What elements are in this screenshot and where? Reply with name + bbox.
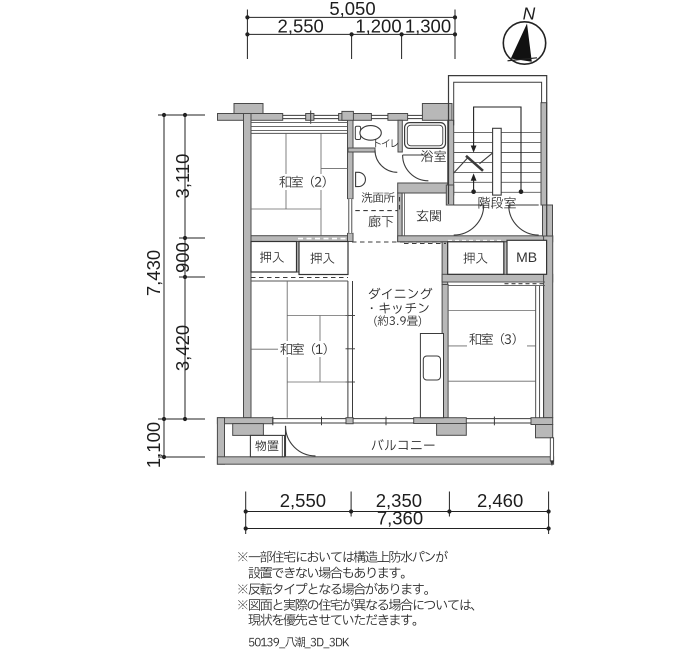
svg-text:7,430: 7,430	[143, 250, 164, 296]
svg-text:N: N	[523, 4, 536, 24]
svg-text:3,110: 3,110	[172, 154, 193, 199]
svg-text:MB: MB	[516, 249, 537, 265]
svg-text:7,360: 7,360	[377, 508, 423, 529]
svg-text:2,460: 2,460	[477, 490, 523, 511]
svg-text:1,100: 1,100	[143, 422, 164, 468]
svg-text:1,300: 1,300	[405, 16, 451, 37]
svg-text:900: 900	[172, 242, 193, 273]
svg-text:2,550: 2,550	[280, 490, 326, 511]
svg-text:3,420: 3,420	[172, 325, 193, 371]
svg-text:2,550: 2,550	[278, 16, 324, 37]
svg-text:1,200: 1,200	[355, 16, 401, 37]
